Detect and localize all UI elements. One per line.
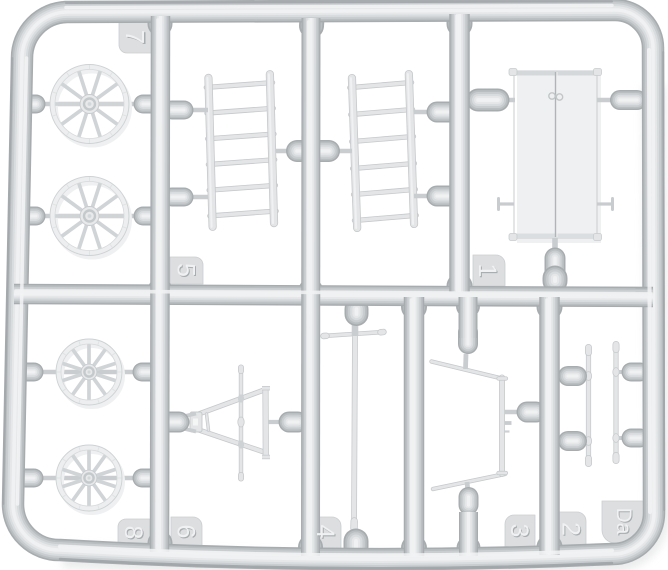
- svg-text:6: 6: [172, 525, 200, 539]
- svg-text:2: 2: [557, 522, 585, 536]
- svg-text:4: 4: [311, 525, 339, 539]
- svg-text:8: 8: [119, 526, 147, 540]
- svg-text:Da: Da: [612, 508, 635, 535]
- svg-text:5: 5: [172, 263, 200, 277]
- svg-text:1: 1: [473, 264, 501, 278]
- svg-text:3: 3: [505, 524, 533, 538]
- svg-text:7: 7: [120, 30, 150, 44]
